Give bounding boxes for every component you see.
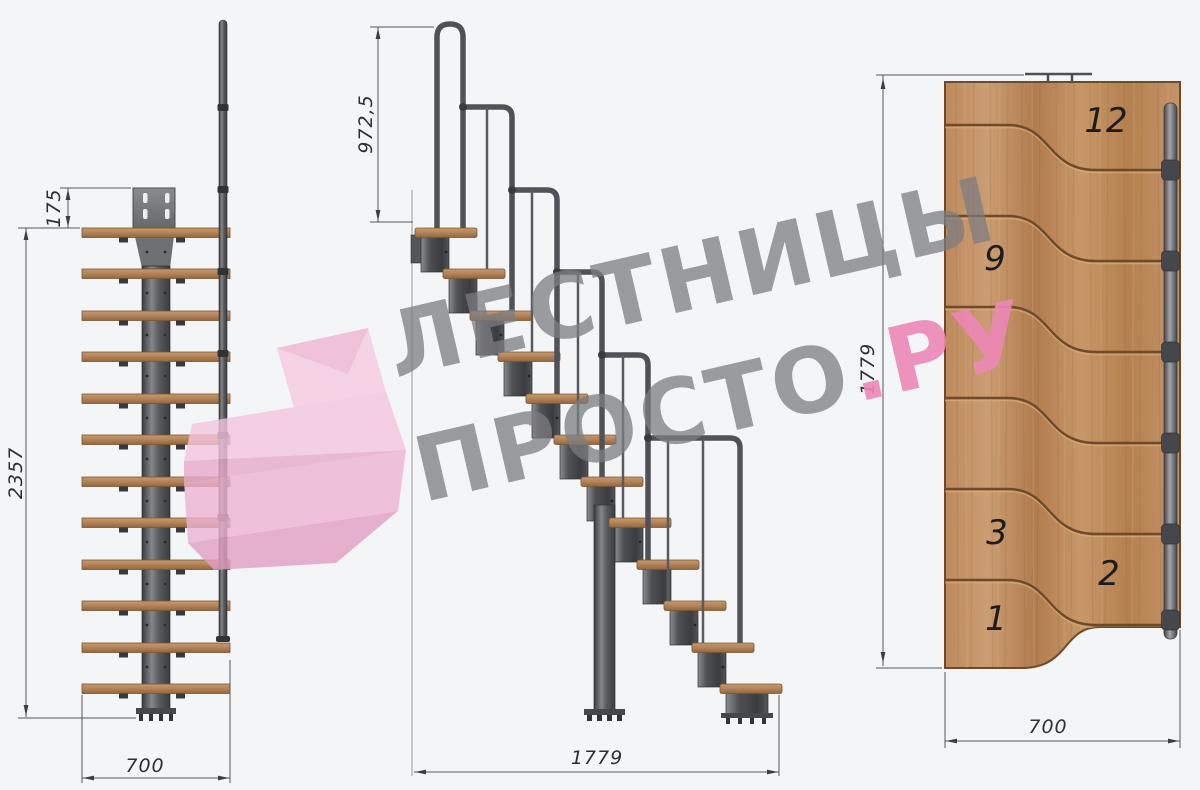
step-number-3: 3 [986,513,1008,553]
dim-label-front-width: 700 [125,755,164,777]
step-number-12: 12 [1084,101,1127,141]
dim-label-total-height: 2357 [5,447,27,499]
technical-drawing: 175 2357 700 972,5 1779 1779 700 12 9 3 … [0,0,1200,790]
front-view [82,20,230,721]
handrail-plan [1162,103,1180,639]
step-number-1: 1 [985,599,1007,639]
dim-label-plate-offset: 175 [43,188,65,227]
dim-label-handrail-height: 972,5 [355,94,377,153]
logo-watermark [184,328,406,570]
dim-label-plan-width: 700 [1028,716,1067,738]
step-number-2: 2 [1098,554,1120,594]
plan-top-bracket [1025,74,1092,81]
dim-label-side-run: 1779 [571,747,623,769]
